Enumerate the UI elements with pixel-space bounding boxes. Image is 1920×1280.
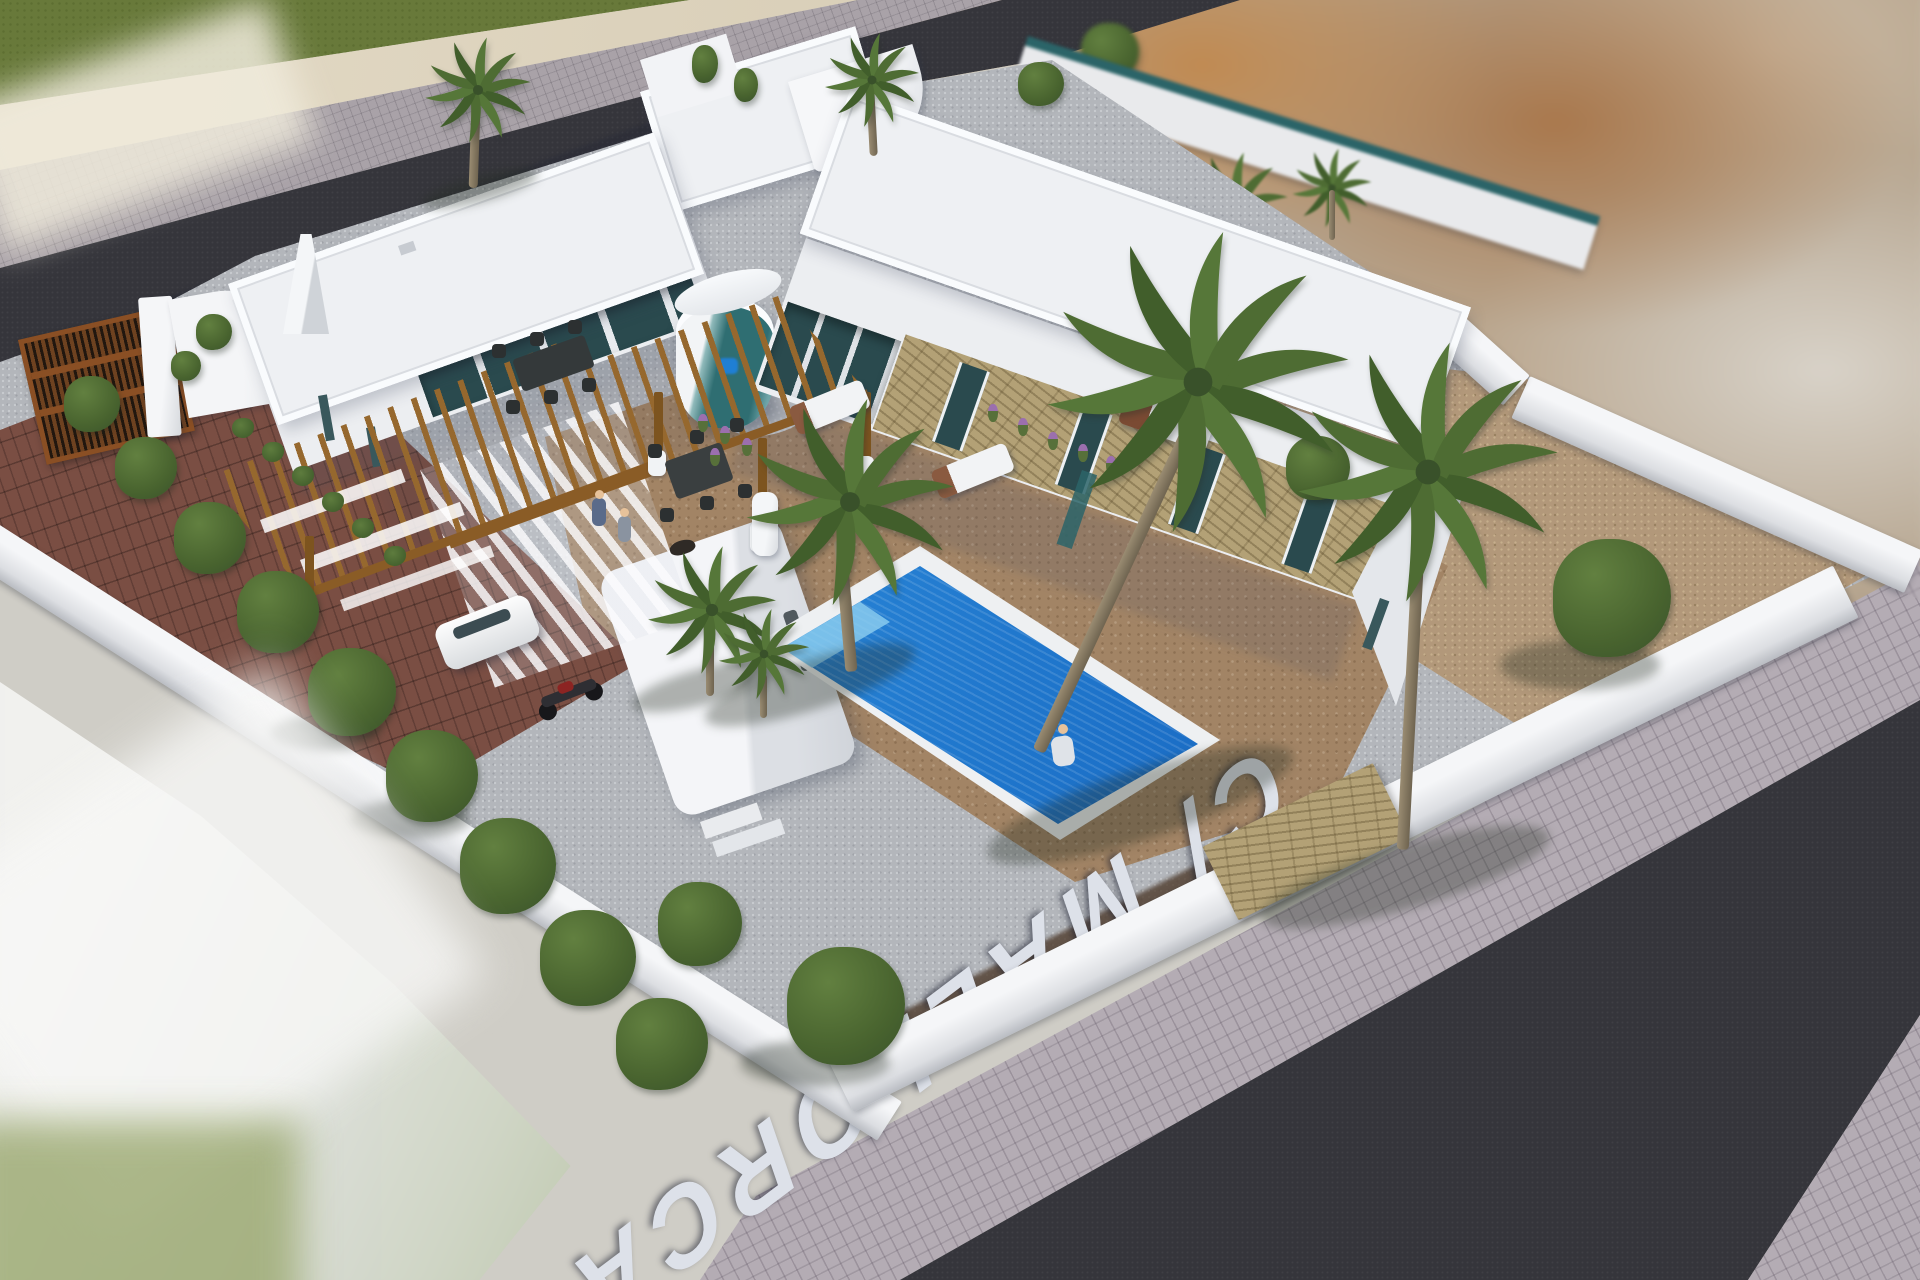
person [618, 516, 631, 542]
dining-chair [660, 508, 674, 522]
person [592, 498, 606, 526]
dining-chair [568, 320, 582, 334]
dining-chair [700, 496, 714, 510]
lavender [710, 448, 720, 466]
palm-tree-corner [1290, 334, 1566, 610]
lavender [720, 426, 730, 444]
fan-palm [716, 606, 812, 702]
pool-person-body [1050, 735, 1076, 768]
dining-chair [530, 332, 544, 346]
dining-chair [690, 430, 704, 444]
foreground-blur-green [0, 1120, 300, 1280]
dining-chair [544, 390, 558, 404]
person-head [595, 490, 604, 499]
garden-tree [616, 998, 708, 1090]
pool-person-head [1058, 724, 1068, 734]
palm-tree [422, 34, 534, 146]
render-canvas: C/ MALLORCA [0, 0, 1920, 1280]
dining-chair [582, 378, 596, 392]
garden-tree [540, 910, 636, 1006]
lavender [698, 414, 708, 432]
dining-chair [648, 444, 662, 458]
dining-chair [492, 344, 506, 358]
lavender [988, 404, 998, 422]
person-head [620, 508, 629, 517]
palm-tree [822, 30, 922, 130]
dining-chair [506, 400, 520, 414]
lavender [1018, 418, 1028, 436]
